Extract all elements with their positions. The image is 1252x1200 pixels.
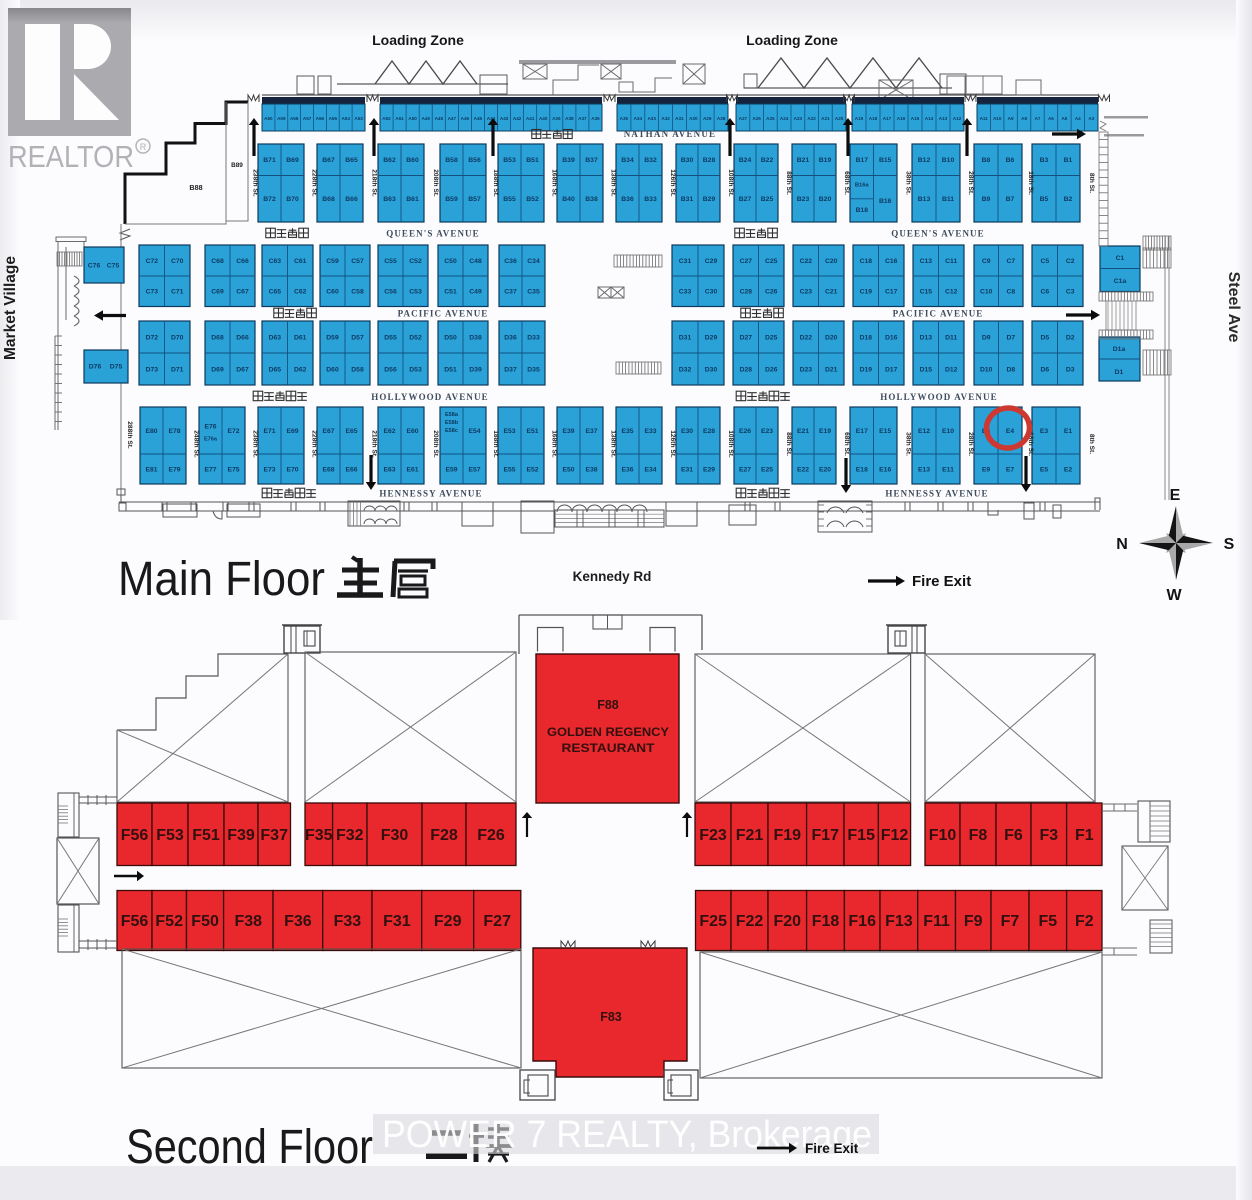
svg-text:F29: F29 bbox=[434, 913, 462, 930]
svg-text:228th St.: 228th St. bbox=[311, 169, 318, 197]
svg-text:D58: D58 bbox=[351, 366, 364, 373]
svg-text:D69: D69 bbox=[211, 366, 224, 373]
svg-text:B6: B6 bbox=[1006, 157, 1015, 164]
svg-text:C29: C29 bbox=[705, 258, 718, 265]
svg-text:N: N bbox=[1116, 536, 1128, 553]
svg-text:C10: C10 bbox=[980, 289, 993, 296]
svg-text:E75: E75 bbox=[227, 466, 239, 473]
svg-text:F5: F5 bbox=[1038, 913, 1057, 930]
svg-text:B36: B36 bbox=[621, 196, 634, 203]
svg-text:C55: C55 bbox=[384, 258, 397, 265]
svg-text:E72: E72 bbox=[227, 428, 239, 435]
svg-text:E59: E59 bbox=[445, 466, 457, 473]
svg-text:D38: D38 bbox=[469, 334, 482, 341]
svg-text:D21: D21 bbox=[825, 366, 838, 373]
svg-text:C72: C72 bbox=[146, 258, 159, 265]
svg-text:C17: C17 bbox=[885, 289, 898, 296]
svg-text:F19: F19 bbox=[774, 827, 802, 844]
svg-text:C58: C58 bbox=[351, 289, 364, 296]
svg-text:C19: C19 bbox=[860, 289, 873, 296]
svg-text:C27: C27 bbox=[740, 258, 753, 265]
svg-text:A10: A10 bbox=[993, 116, 1002, 121]
svg-text:88th St.: 88th St. bbox=[785, 432, 792, 456]
svg-text:E51: E51 bbox=[526, 428, 538, 435]
svg-text:F56: F56 bbox=[121, 827, 149, 844]
svg-text:E50: E50 bbox=[562, 466, 574, 473]
svg-text:B60: B60 bbox=[406, 157, 419, 164]
svg-text:F56: F56 bbox=[121, 913, 149, 930]
svg-text:B18: B18 bbox=[856, 207, 869, 214]
svg-text:C11: C11 bbox=[945, 258, 957, 265]
svg-text:A3: A3 bbox=[1088, 116, 1094, 121]
svg-text:D61: D61 bbox=[294, 334, 307, 341]
svg-text:C71: C71 bbox=[171, 289, 184, 296]
svg-text:E71: E71 bbox=[263, 428, 275, 435]
svg-text:B3: B3 bbox=[1040, 157, 1049, 164]
svg-text:Second Floor: Second Floor bbox=[126, 1121, 373, 1174]
svg-text:F15: F15 bbox=[847, 827, 875, 844]
svg-text:B67: B67 bbox=[322, 157, 335, 164]
svg-text:F38: F38 bbox=[235, 913, 263, 930]
svg-text:A26: A26 bbox=[752, 116, 761, 121]
svg-text:F21: F21 bbox=[736, 827, 764, 844]
svg-text:E13: E13 bbox=[918, 466, 930, 473]
svg-text:B29: B29 bbox=[703, 196, 716, 203]
svg-text:F32: F32 bbox=[336, 827, 364, 844]
svg-text:E68: E68 bbox=[322, 466, 334, 473]
svg-text:C60: C60 bbox=[326, 289, 339, 296]
svg-text:B58: B58 bbox=[445, 157, 458, 164]
svg-text:D76: D76 bbox=[89, 364, 102, 371]
svg-text:B34: B34 bbox=[621, 157, 634, 164]
svg-text:F35: F35 bbox=[305, 827, 333, 844]
svg-text:A46: A46 bbox=[461, 116, 470, 121]
svg-text:C1a: C1a bbox=[1114, 278, 1127, 285]
svg-text:E38: E38 bbox=[585, 466, 597, 473]
svg-text:D75: D75 bbox=[110, 364, 123, 371]
svg-text:C25: C25 bbox=[765, 258, 778, 265]
svg-text:F51: F51 bbox=[192, 827, 220, 844]
svg-text:A14: A14 bbox=[925, 116, 934, 121]
svg-text:F26: F26 bbox=[477, 827, 505, 844]
svg-text:E26: E26 bbox=[739, 428, 751, 435]
svg-text:D27: D27 bbox=[740, 334, 753, 341]
svg-text:F11: F11 bbox=[923, 913, 950, 930]
svg-text:C22: C22 bbox=[800, 258, 813, 265]
svg-text:C61: C61 bbox=[294, 258, 307, 265]
svg-text:A48: A48 bbox=[435, 116, 444, 121]
svg-text:C2: C2 bbox=[1066, 258, 1075, 265]
svg-text:E65: E65 bbox=[345, 428, 357, 435]
svg-text:E76: E76 bbox=[204, 424, 216, 431]
svg-text:C26: C26 bbox=[765, 289, 778, 296]
svg-text:126th St.: 126th St. bbox=[669, 430, 676, 458]
svg-text:B71: B71 bbox=[263, 157, 276, 164]
svg-text:D7: D7 bbox=[1006, 334, 1015, 341]
svg-text:D19: D19 bbox=[860, 366, 873, 373]
svg-text:C65: C65 bbox=[269, 289, 282, 296]
svg-text:A49: A49 bbox=[421, 116, 430, 121]
svg-text:C68: C68 bbox=[211, 258, 224, 265]
svg-text:D52: D52 bbox=[409, 334, 422, 341]
svg-text:C18: C18 bbox=[860, 258, 873, 265]
svg-text:E70: E70 bbox=[286, 466, 298, 473]
svg-text:C21: C21 bbox=[825, 289, 838, 296]
svg-text:B68: B68 bbox=[322, 196, 335, 203]
svg-text:D60: D60 bbox=[326, 366, 339, 373]
svg-text:REALTOR: REALTOR bbox=[8, 139, 134, 174]
svg-text:A50: A50 bbox=[408, 116, 417, 121]
svg-text:168th St.: 168th St. bbox=[551, 430, 558, 458]
svg-text:D68: D68 bbox=[211, 334, 224, 341]
svg-text:A33: A33 bbox=[647, 116, 656, 121]
svg-text:A37: A37 bbox=[578, 116, 587, 121]
svg-text:E9: E9 bbox=[982, 466, 991, 473]
svg-text:E73: E73 bbox=[263, 466, 275, 473]
svg-text:D8: D8 bbox=[1006, 366, 1015, 373]
svg-text:248th St.: 248th St. bbox=[193, 430, 200, 458]
svg-text:E3: E3 bbox=[1040, 428, 1049, 435]
svg-text:C6: C6 bbox=[1040, 289, 1049, 296]
svg-text:B16: B16 bbox=[879, 198, 892, 205]
svg-text:18th St.: 18th St. bbox=[1027, 171, 1034, 195]
svg-text:F1: F1 bbox=[1075, 827, 1094, 844]
svg-text:A40: A40 bbox=[539, 116, 548, 121]
svg-text:A52: A52 bbox=[382, 116, 391, 121]
svg-text:C20: C20 bbox=[825, 258, 838, 265]
svg-text:38th St.: 38th St. bbox=[905, 432, 912, 456]
svg-text:E: E bbox=[1170, 487, 1181, 504]
svg-text:B32: B32 bbox=[644, 157, 657, 164]
svg-text:D25: D25 bbox=[765, 334, 778, 341]
svg-text:E37: E37 bbox=[585, 428, 597, 435]
svg-text:E11: E11 bbox=[942, 466, 954, 473]
svg-text:A54: A54 bbox=[341, 116, 350, 121]
svg-text:F27: F27 bbox=[483, 913, 511, 930]
svg-text:B2: B2 bbox=[1064, 196, 1073, 203]
svg-text:E61: E61 bbox=[406, 466, 418, 473]
svg-text:A32: A32 bbox=[661, 116, 670, 121]
svg-text:E30: E30 bbox=[681, 428, 693, 435]
svg-text:F12: F12 bbox=[881, 827, 909, 844]
svg-text:B40: B40 bbox=[562, 196, 575, 203]
svg-text:F31: F31 bbox=[383, 913, 411, 930]
svg-text:D16: D16 bbox=[885, 334, 898, 341]
svg-text:D1: D1 bbox=[1115, 369, 1124, 376]
svg-text:Loading Zone: Loading Zone bbox=[746, 32, 838, 48]
svg-text:A12: A12 bbox=[953, 116, 962, 121]
svg-text:C15: C15 bbox=[920, 289, 933, 296]
svg-text:D39: D39 bbox=[469, 366, 482, 373]
svg-text:C76: C76 bbox=[88, 263, 101, 270]
svg-text:C7: C7 bbox=[1006, 258, 1015, 265]
svg-text:E81: E81 bbox=[145, 466, 157, 473]
svg-text:A43: A43 bbox=[500, 116, 509, 121]
svg-text:C30: C30 bbox=[705, 289, 718, 296]
svg-text:E58b: E58b bbox=[445, 420, 459, 426]
svg-text:W: W bbox=[1166, 587, 1182, 604]
svg-text:E78: E78 bbox=[168, 428, 180, 435]
svg-text:238th St.: 238th St. bbox=[252, 169, 259, 197]
svg-text:C69: C69 bbox=[211, 289, 224, 296]
svg-text:C5: C5 bbox=[1040, 258, 1049, 265]
svg-text:A16: A16 bbox=[897, 116, 906, 121]
svg-text:E35: E35 bbox=[621, 428, 633, 435]
svg-text:D31: D31 bbox=[679, 334, 692, 341]
svg-text:C50: C50 bbox=[444, 258, 457, 265]
svg-text:D65: D65 bbox=[269, 366, 282, 373]
svg-text:C57: C57 bbox=[351, 258, 364, 265]
svg-text:C49: C49 bbox=[469, 289, 482, 296]
svg-text:E2: E2 bbox=[1064, 466, 1073, 473]
svg-text:D36: D36 bbox=[504, 334, 517, 341]
svg-text:B61: B61 bbox=[406, 196, 419, 203]
svg-text:C23: C23 bbox=[800, 289, 813, 296]
svg-text:E20: E20 bbox=[819, 466, 831, 473]
svg-text:F25: F25 bbox=[699, 913, 727, 930]
svg-text:E77: E77 bbox=[204, 466, 216, 473]
svg-text:E18: E18 bbox=[856, 466, 868, 473]
svg-text:C12: C12 bbox=[945, 289, 958, 296]
svg-text:E67: E67 bbox=[322, 428, 334, 435]
svg-text:C37: C37 bbox=[504, 289, 517, 296]
svg-text:C36: C36 bbox=[504, 258, 517, 265]
svg-text:B37: B37 bbox=[585, 157, 598, 164]
svg-text:B66: B66 bbox=[345, 196, 358, 203]
svg-text:108th St.: 108th St. bbox=[727, 169, 734, 197]
svg-text:A35: A35 bbox=[620, 116, 629, 121]
svg-text:D22: D22 bbox=[800, 334, 813, 341]
svg-text:E39: E39 bbox=[562, 428, 574, 435]
svg-text:188th St.: 188th St. bbox=[492, 430, 499, 458]
svg-text:8th St.: 8th St. bbox=[1088, 434, 1095, 454]
svg-text:E1: E1 bbox=[1064, 428, 1073, 435]
svg-text:PACIFIC AVENUE: PACIFIC AVENUE bbox=[893, 309, 984, 319]
svg-text:Loading Zone: Loading Zone bbox=[372, 32, 464, 48]
svg-text:F8: F8 bbox=[969, 827, 988, 844]
svg-text:A24: A24 bbox=[780, 116, 789, 121]
svg-text:D73: D73 bbox=[146, 366, 159, 373]
svg-text:D9: D9 bbox=[982, 334, 991, 341]
svg-text:C9: C9 bbox=[982, 258, 991, 265]
svg-text:A41: A41 bbox=[526, 116, 535, 121]
svg-text:D6: D6 bbox=[1040, 366, 1049, 373]
svg-text:A45: A45 bbox=[474, 116, 483, 121]
svg-text:D70: D70 bbox=[171, 334, 184, 341]
svg-text:HOLLYWOOD AVENUE: HOLLYWOOD AVENUE bbox=[880, 392, 997, 402]
svg-text:B8: B8 bbox=[982, 157, 991, 164]
svg-text:D17: D17 bbox=[885, 366, 898, 373]
svg-text:D32: D32 bbox=[679, 366, 692, 373]
svg-text:B70: B70 bbox=[286, 196, 299, 203]
svg-text:E62: E62 bbox=[383, 428, 395, 435]
svg-text:C33: C33 bbox=[679, 289, 692, 296]
svg-text:F33: F33 bbox=[334, 913, 362, 930]
svg-text:PACIFIC AVENUE: PACIFIC AVENUE bbox=[398, 309, 489, 319]
svg-text:B59: B59 bbox=[445, 196, 458, 203]
svg-text:168th St.: 168th St. bbox=[551, 169, 558, 197]
svg-text:A17: A17 bbox=[883, 116, 892, 121]
svg-text:D50: D50 bbox=[444, 334, 457, 341]
svg-text:B72: B72 bbox=[263, 196, 276, 203]
svg-text:B17: B17 bbox=[856, 157, 869, 164]
svg-text:F53: F53 bbox=[156, 827, 184, 844]
svg-text:126th St.: 126th St. bbox=[669, 169, 676, 197]
svg-text:B10: B10 bbox=[942, 157, 955, 164]
svg-text:A13: A13 bbox=[939, 116, 948, 121]
svg-text:B24: B24 bbox=[739, 157, 752, 164]
svg-text:138th St.: 138th St. bbox=[610, 169, 617, 197]
svg-text:68th St.: 68th St. bbox=[843, 432, 850, 456]
svg-text:C66: C66 bbox=[236, 258, 249, 265]
svg-text:D15: D15 bbox=[920, 366, 933, 373]
svg-text:D23: D23 bbox=[800, 366, 813, 373]
svg-text:B12: B12 bbox=[918, 157, 931, 164]
svg-text:E52: E52 bbox=[526, 466, 538, 473]
svg-text:38th St.: 38th St. bbox=[905, 171, 912, 195]
svg-text:B16a: B16a bbox=[855, 183, 870, 189]
svg-text:B11: B11 bbox=[942, 196, 954, 203]
svg-text:C62: C62 bbox=[294, 289, 307, 296]
svg-text:28th St.: 28th St. bbox=[967, 432, 974, 456]
svg-text:E22: E22 bbox=[797, 466, 809, 473]
svg-text:138th St.: 138th St. bbox=[610, 430, 617, 458]
svg-text:F52: F52 bbox=[155, 913, 183, 930]
svg-text:288th St.: 288th St. bbox=[126, 421, 133, 449]
svg-text:A53: A53 bbox=[354, 116, 363, 121]
svg-text:A18: A18 bbox=[869, 116, 878, 121]
svg-text:Market Village: Market Village bbox=[2, 256, 19, 360]
svg-text:E21: E21 bbox=[797, 428, 809, 435]
svg-text:B52: B52 bbox=[526, 196, 539, 203]
svg-text:C70: C70 bbox=[171, 258, 184, 265]
svg-text:F37: F37 bbox=[260, 827, 288, 844]
svg-text:C51: C51 bbox=[444, 289, 457, 296]
svg-text:F36: F36 bbox=[284, 913, 312, 930]
svg-text:F16: F16 bbox=[848, 913, 876, 930]
svg-text:E4: E4 bbox=[1006, 428, 1015, 435]
svg-text:208th St.: 208th St. bbox=[432, 169, 439, 197]
svg-text:B7: B7 bbox=[1006, 196, 1015, 203]
svg-text:E76a: E76a bbox=[204, 437, 218, 443]
svg-text:A21: A21 bbox=[821, 116, 830, 121]
svg-text:C3: C3 bbox=[1066, 289, 1075, 296]
svg-text:A22: A22 bbox=[807, 116, 816, 121]
svg-text:D33: D33 bbox=[527, 334, 540, 341]
svg-text:B33: B33 bbox=[644, 196, 657, 203]
svg-text:B21: B21 bbox=[797, 157, 810, 164]
svg-text:D72: D72 bbox=[146, 334, 159, 341]
svg-text:F22: F22 bbox=[736, 913, 764, 930]
svg-text:Kennedy Rd: Kennedy Rd bbox=[573, 569, 652, 584]
svg-text:F3: F3 bbox=[1039, 827, 1058, 844]
svg-text:C34: C34 bbox=[527, 258, 540, 265]
svg-text:F6: F6 bbox=[1004, 827, 1023, 844]
svg-text:Fire Exit: Fire Exit bbox=[912, 573, 971, 590]
svg-text:D20: D20 bbox=[825, 334, 838, 341]
svg-text:A27: A27 bbox=[739, 116, 748, 121]
svg-text:B51: B51 bbox=[526, 157, 539, 164]
svg-text:A47: A47 bbox=[448, 116, 457, 121]
svg-text:B30: B30 bbox=[681, 157, 694, 164]
svg-text:E79: E79 bbox=[168, 466, 180, 473]
svg-text:C31: C31 bbox=[679, 258, 692, 265]
svg-text:A58: A58 bbox=[290, 116, 299, 121]
svg-text:C59: C59 bbox=[326, 258, 339, 265]
svg-text:D67: D67 bbox=[236, 366, 249, 373]
svg-text:HENNESSY AVENUE: HENNESSY AVENUE bbox=[885, 489, 988, 499]
svg-text:C1: C1 bbox=[1116, 255, 1125, 262]
svg-text:F2: F2 bbox=[1075, 913, 1094, 930]
svg-text:R: R bbox=[140, 142, 147, 152]
svg-text:E10: E10 bbox=[942, 428, 954, 435]
svg-text:B27: B27 bbox=[739, 196, 752, 203]
svg-text:D53: D53 bbox=[409, 366, 422, 373]
svg-text:B89: B89 bbox=[231, 162, 243, 169]
svg-text:B62: B62 bbox=[383, 157, 396, 164]
svg-text:68th St.: 68th St. bbox=[843, 171, 850, 195]
svg-text:B53: B53 bbox=[503, 157, 516, 164]
svg-text:RESTAURANT: RESTAURANT bbox=[562, 743, 655, 755]
svg-text:D3: D3 bbox=[1066, 366, 1075, 373]
svg-text:B23: B23 bbox=[797, 196, 810, 203]
svg-text:8th St.: 8th St. bbox=[1088, 173, 1095, 193]
svg-text:D29: D29 bbox=[705, 334, 718, 341]
svg-text:E28: E28 bbox=[703, 428, 715, 435]
svg-text:E31: E31 bbox=[681, 466, 693, 473]
svg-text:F20: F20 bbox=[774, 913, 802, 930]
svg-text:E5: E5 bbox=[1040, 466, 1049, 473]
svg-text:E16: E16 bbox=[879, 466, 891, 473]
svg-text:E80: E80 bbox=[145, 428, 157, 435]
svg-text:C52: C52 bbox=[409, 258, 422, 265]
svg-text:F23: F23 bbox=[699, 827, 727, 844]
svg-text:B55: B55 bbox=[503, 196, 516, 203]
svg-text:E66: E66 bbox=[345, 466, 357, 473]
svg-text:B56: B56 bbox=[468, 157, 481, 164]
svg-text:E53: E53 bbox=[503, 428, 515, 435]
svg-text:F9: F9 bbox=[964, 913, 983, 930]
svg-text:E25: E25 bbox=[761, 466, 773, 473]
svg-text:E17: E17 bbox=[856, 428, 868, 435]
svg-text:HENNESSY AVENUE: HENNESSY AVENUE bbox=[379, 489, 482, 499]
svg-text:E69: E69 bbox=[286, 428, 298, 435]
svg-text:108th St.: 108th St. bbox=[727, 430, 734, 458]
svg-text:E58a: E58a bbox=[445, 412, 459, 418]
svg-text:B38: B38 bbox=[585, 196, 598, 203]
svg-text:F17: F17 bbox=[812, 827, 840, 844]
svg-text:B28: B28 bbox=[703, 157, 716, 164]
svg-text:A36: A36 bbox=[591, 116, 600, 121]
svg-text:D56: D56 bbox=[384, 366, 397, 373]
svg-text:A11: A11 bbox=[980, 116, 989, 121]
svg-text:F10: F10 bbox=[929, 827, 957, 844]
svg-text:A6: A6 bbox=[1048, 116, 1054, 121]
svg-text:E7: E7 bbox=[1006, 466, 1015, 473]
svg-text:A15: A15 bbox=[911, 116, 920, 121]
svg-text:88th St.: 88th St. bbox=[785, 171, 792, 195]
svg-text:A59: A59 bbox=[277, 116, 286, 121]
svg-text:GOLDEN REGENCY: GOLDEN REGENCY bbox=[547, 727, 669, 739]
svg-text:E33: E33 bbox=[644, 428, 656, 435]
svg-text:E19: E19 bbox=[819, 428, 831, 435]
svg-text:D35: D35 bbox=[527, 366, 540, 373]
svg-text:E15: E15 bbox=[879, 428, 891, 435]
svg-text:HOLLYWOOD AVENUE: HOLLYWOOD AVENUE bbox=[371, 392, 488, 402]
svg-text:B57: B57 bbox=[468, 196, 481, 203]
svg-text:B20: B20 bbox=[819, 196, 832, 203]
svg-text:E36: E36 bbox=[621, 466, 633, 473]
